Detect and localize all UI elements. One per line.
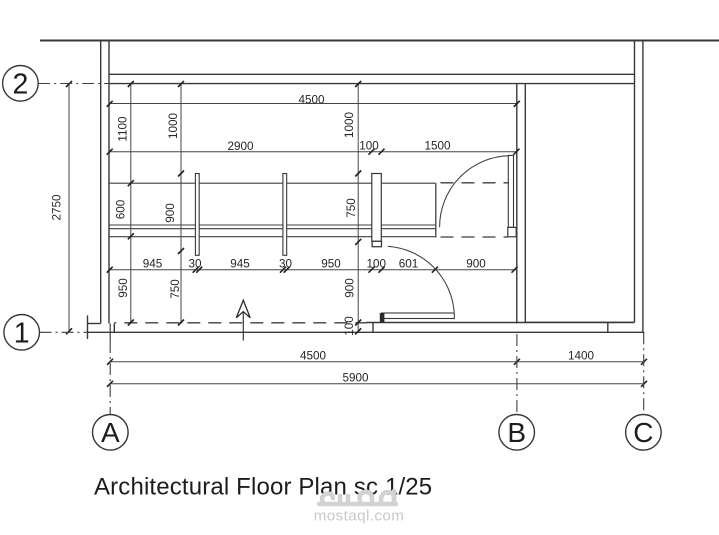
svg-text:4500: 4500: [298, 93, 325, 106]
svg-text:950: 950: [117, 278, 130, 298]
svg-text:1500: 1500: [424, 139, 451, 152]
svg-text:100: 100: [343, 316, 356, 336]
svg-text:1400: 1400: [568, 350, 595, 363]
svg-text:C: C: [633, 417, 653, 448]
svg-text:600: 600: [115, 199, 128, 219]
svg-text:1000: 1000: [167, 113, 180, 140]
svg-text:950: 950: [321, 257, 341, 270]
svg-text:900: 900: [466, 257, 486, 270]
svg-text:900: 900: [344, 278, 357, 298]
svg-text:900: 900: [164, 203, 177, 223]
svg-text:2: 2: [12, 69, 28, 101]
svg-text:100: 100: [367, 257, 387, 270]
svg-text:A: A: [101, 417, 120, 448]
svg-text:100: 100: [359, 139, 379, 152]
svg-text:4500: 4500: [300, 350, 327, 363]
svg-text:601: 601: [399, 257, 419, 270]
svg-text:mostaql.com: mostaql.com: [314, 508, 405, 525]
svg-text:B: B: [507, 417, 526, 448]
svg-text:750: 750: [345, 198, 358, 218]
svg-text:30: 30: [279, 257, 293, 270]
svg-text:30: 30: [188, 257, 202, 270]
svg-text:2750: 2750: [51, 194, 64, 221]
svg-text:5900: 5900: [342, 372, 369, 385]
svg-text:1100: 1100: [117, 116, 130, 142]
svg-text:945: 945: [230, 257, 250, 270]
svg-text:1: 1: [14, 318, 30, 350]
svg-text:750: 750: [169, 279, 182, 299]
svg-text:945: 945: [143, 257, 163, 270]
svg-text:1000: 1000: [343, 112, 356, 139]
svg-text:2900: 2900: [227, 140, 254, 153]
